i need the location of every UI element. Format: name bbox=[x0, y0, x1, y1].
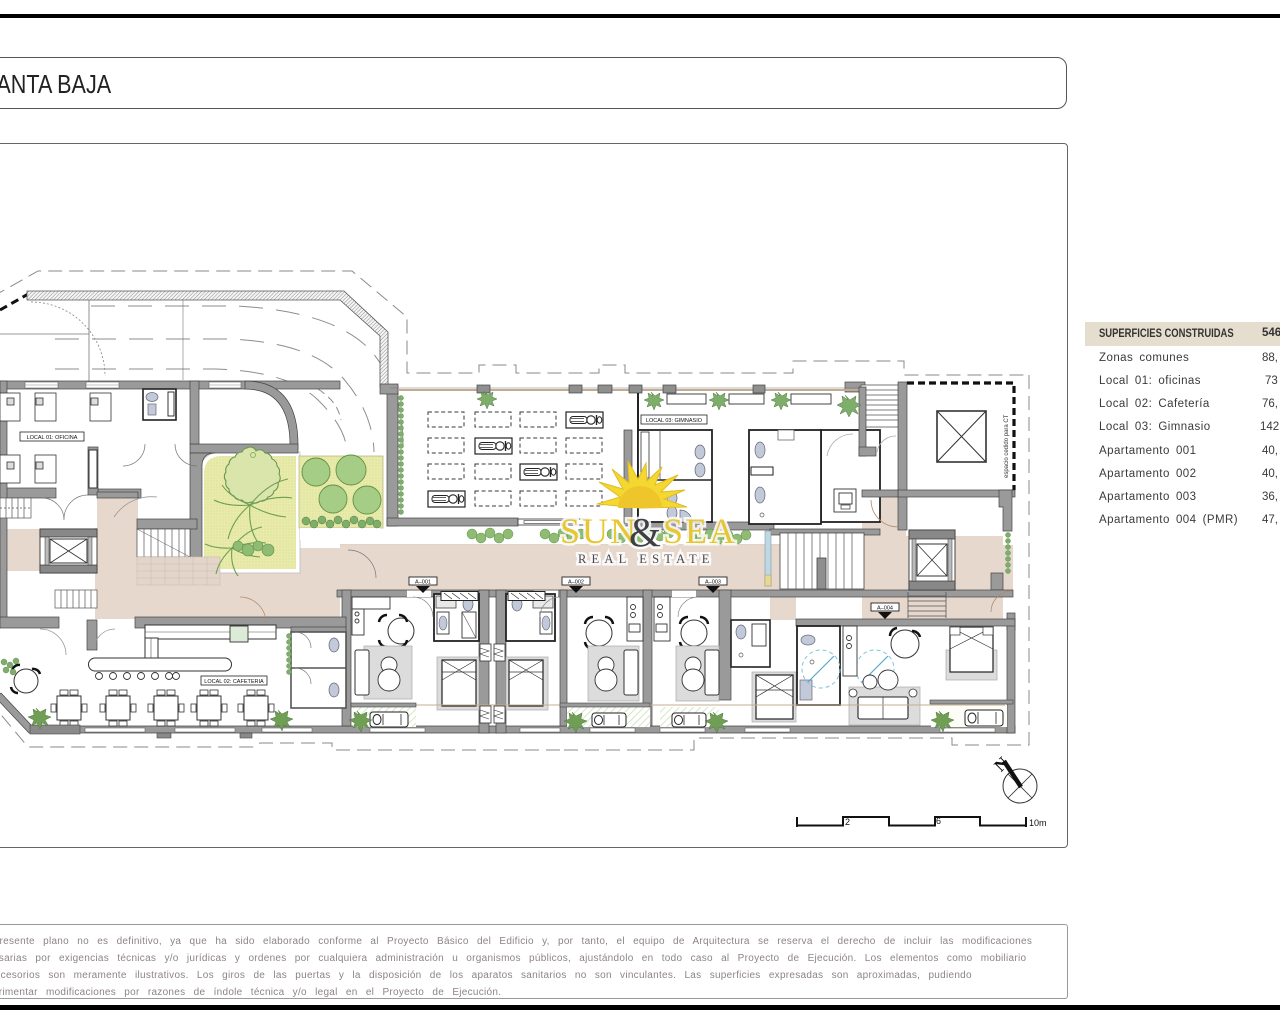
svg-text:6: 6 bbox=[936, 816, 941, 826]
svg-text:A–002: A–002 bbox=[568, 580, 584, 586]
svg-text:A–003: A–003 bbox=[705, 580, 721, 586]
svg-text:A–001: A–001 bbox=[415, 580, 431, 586]
svg-text:LOCAL 02: CAFETERIA: LOCAL 02: CAFETERIA bbox=[204, 679, 264, 685]
svg-text:SEA: SEA bbox=[663, 511, 737, 551]
svg-text:REAL ESTATE: REAL ESTATE bbox=[578, 552, 715, 566]
svg-text:SUN: SUN bbox=[560, 511, 638, 551]
svg-text:LOCAL 03: GIMNASIO: LOCAL 03: GIMNASIO bbox=[646, 418, 703, 424]
svg-text:espacio cedido para CT: espacio cedido para CT bbox=[1004, 414, 1010, 478]
svg-text:10m: 10m bbox=[1029, 818, 1047, 828]
svg-text:LOCAL 01: OFICINA: LOCAL 01: OFICINA bbox=[27, 435, 78, 441]
svg-text:A–004: A–004 bbox=[877, 606, 893, 612]
svg-text:2: 2 bbox=[845, 817, 850, 827]
svg-text:&: & bbox=[629, 509, 661, 555]
